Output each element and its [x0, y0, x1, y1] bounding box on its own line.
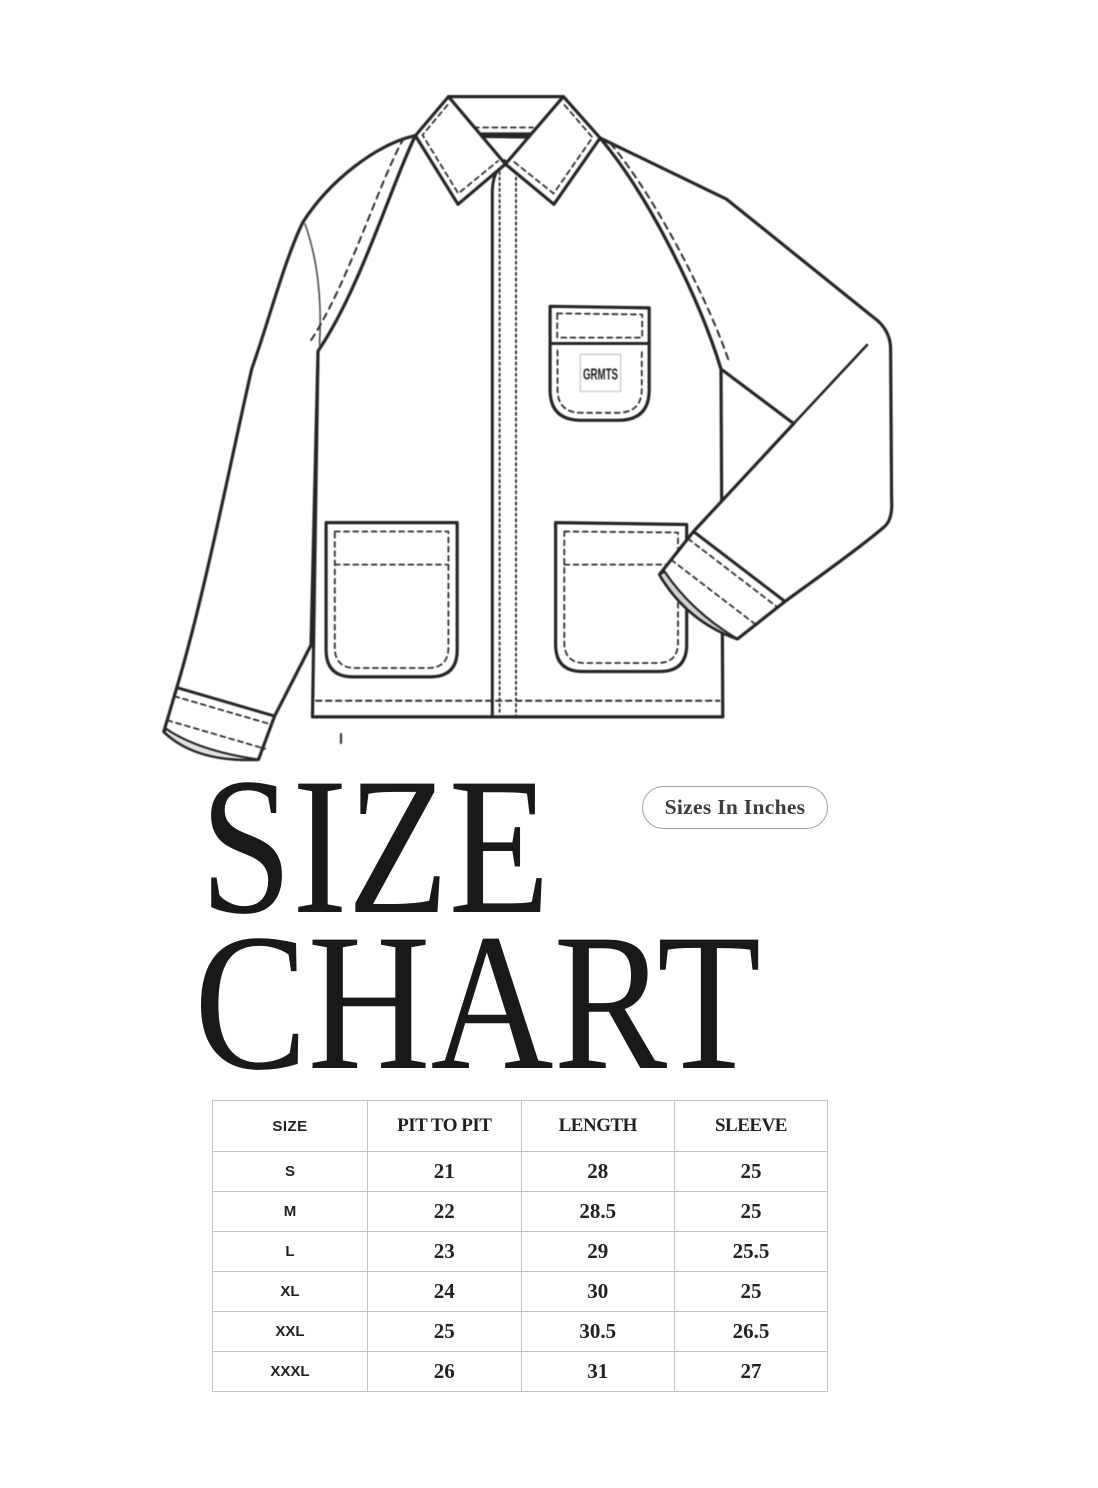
svg-text:CHART: CHART — [194, 894, 761, 1111]
